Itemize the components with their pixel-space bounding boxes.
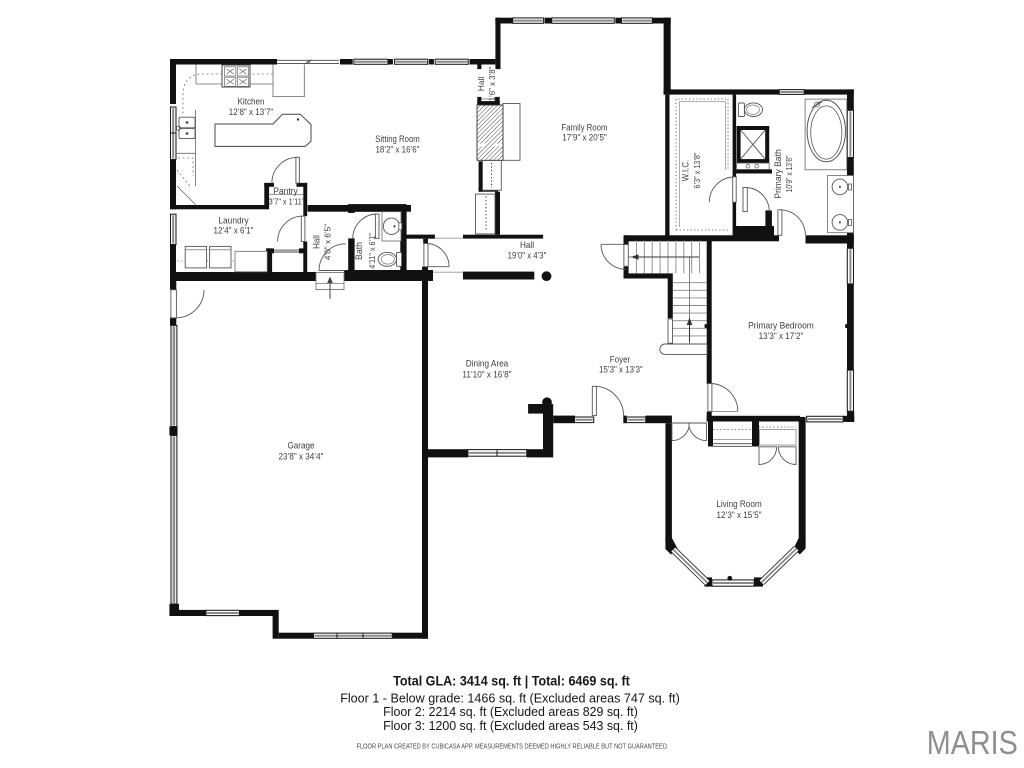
svg-text:Sitting Room: Sitting Room (375, 134, 420, 144)
svg-text:FLOOR PLAN CREATED BY CUBICASA: FLOOR PLAN CREATED BY CUBICASA APP. MEAS… (357, 744, 669, 751)
svg-text:6’3" x 13’8": 6’3" x 13’8" (692, 153, 702, 189)
svg-text:1’6" x 3’8": 1’6" x 3’8" (488, 66, 497, 101)
svg-text:4’0" x 6’5": 4’0" x 6’5" (323, 224, 333, 260)
svg-text:13’3" x 17’2": 13’3" x 17’2" (759, 331, 804, 341)
svg-text:Pantry: Pantry (273, 186, 298, 196)
svg-text:18’2" x 16’6": 18’2" x 16’6" (376, 144, 420, 154)
svg-text:Floor 3: 1200 sq. ft (Excluded: Floor 3: 1200 sq. ft (Excluded areas 543… (383, 718, 638, 733)
svg-text:Living Room: Living Room (716, 499, 761, 509)
svg-text:12’3" x 15’5": 12’3" x 15’5" (717, 510, 762, 520)
svg-text:Kitchen: Kitchen (238, 97, 265, 107)
svg-text:10’9" x 13’8": 10’9" x 13’8" (784, 156, 794, 193)
svg-text:4’11" x 6’1": 4’11" x 6’1" (367, 233, 377, 269)
svg-text:MARIS: MARIS (927, 724, 1018, 761)
svg-text:Garage: Garage (288, 441, 315, 451)
svg-text:W.I.C.: W.I.C. (681, 160, 691, 181)
svg-text:Hall: Hall (520, 240, 534, 250)
svg-text:15’3" x 13’3": 15’3" x 13’3" (599, 365, 643, 375)
svg-text:Primary Bath: Primary Bath (773, 149, 783, 199)
svg-text:12’8" x 13’7": 12’8" x 13’7" (229, 107, 274, 117)
svg-text:Hall: Hall (477, 76, 486, 91)
svg-text:Laundry: Laundry (218, 216, 249, 226)
svg-text:Dining Area: Dining Area (466, 359, 508, 369)
svg-text:19’0" x 4’3": 19’0" x 4’3" (508, 250, 547, 260)
svg-text:3’7" x 1’11": 3’7" x 1’11" (269, 197, 305, 206)
svg-text:17’9" x 20’5": 17’9" x 20’5" (562, 133, 607, 143)
svg-text:11’10" x 16’8": 11’10" x 16’8" (462, 369, 511, 379)
svg-text:Hall: Hall (312, 235, 322, 249)
svg-text:Family Room: Family Room (562, 123, 608, 133)
svg-text:Primary Bedroom: Primary Bedroom (748, 321, 814, 331)
svg-text:12’4" x 6’1": 12’4" x 6’1" (214, 226, 254, 236)
svg-text:23’8" x 34’4": 23’8" x 34’4" (279, 452, 324, 462)
svg-text:Bath: Bath (354, 242, 364, 260)
svg-text:Floor 2: 2214 sq. ft (Excluded: Floor 2: 2214 sq. ft (Excluded areas 829… (383, 704, 638, 719)
svg-text:Total GLA: 3414 sq. ft | Total: Total GLA: 3414 sq. ft | Total: 6469 sq.… (393, 672, 630, 688)
svg-text:Foyer: Foyer (610, 355, 630, 365)
